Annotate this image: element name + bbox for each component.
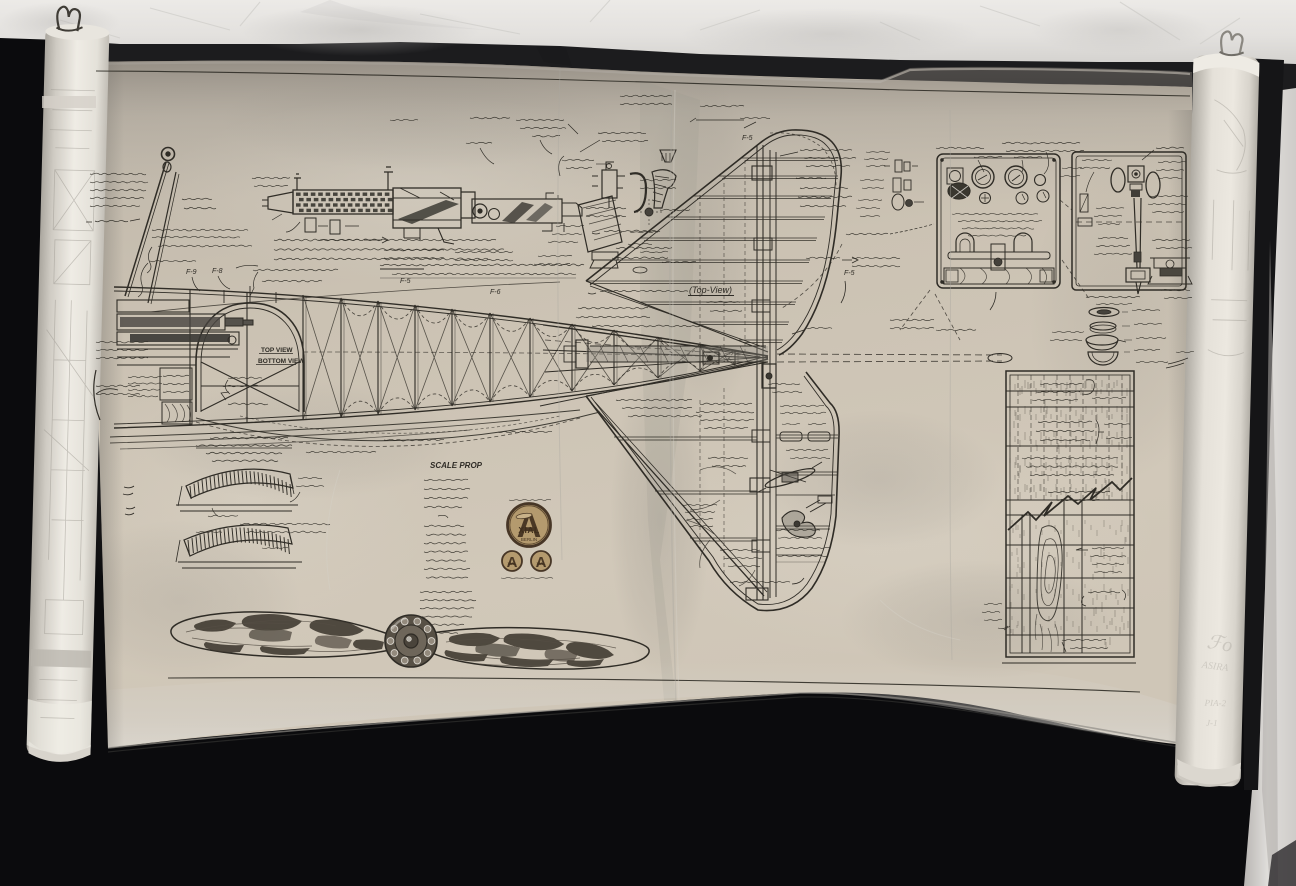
svg-text:F-5: F-5	[400, 278, 411, 285]
svg-text:(Top-View): (Top-View)	[689, 285, 732, 295]
svg-text:SCALE PROP: SCALE PROP	[430, 461, 483, 470]
svg-text:XIAL: XIAL	[518, 525, 539, 535]
svg-text:XIAL: XIAL	[507, 561, 517, 566]
svg-text:F-8: F-8	[212, 268, 223, 275]
svg-text:F-5: F-5	[844, 270, 855, 277]
svg-text:ℱo: ℱo	[1205, 631, 1234, 657]
svg-text:F-6: F-6	[490, 289, 501, 296]
svg-text:BERLIN: BERLIN	[521, 537, 537, 542]
svg-text:TOP VIEW: TOP VIEW	[261, 347, 293, 354]
svg-text:F-5: F-5	[742, 135, 753, 142]
svg-text:BOTTOM VIEW: BOTTOM VIEW	[258, 358, 305, 365]
svg-text:XIAL: XIAL	[536, 561, 546, 566]
svg-text:F-9: F-9	[186, 269, 197, 276]
svg-text:J-1: J-1	[1206, 718, 1218, 728]
svg-text:PIA-2: PIA-2	[1203, 698, 1226, 709]
